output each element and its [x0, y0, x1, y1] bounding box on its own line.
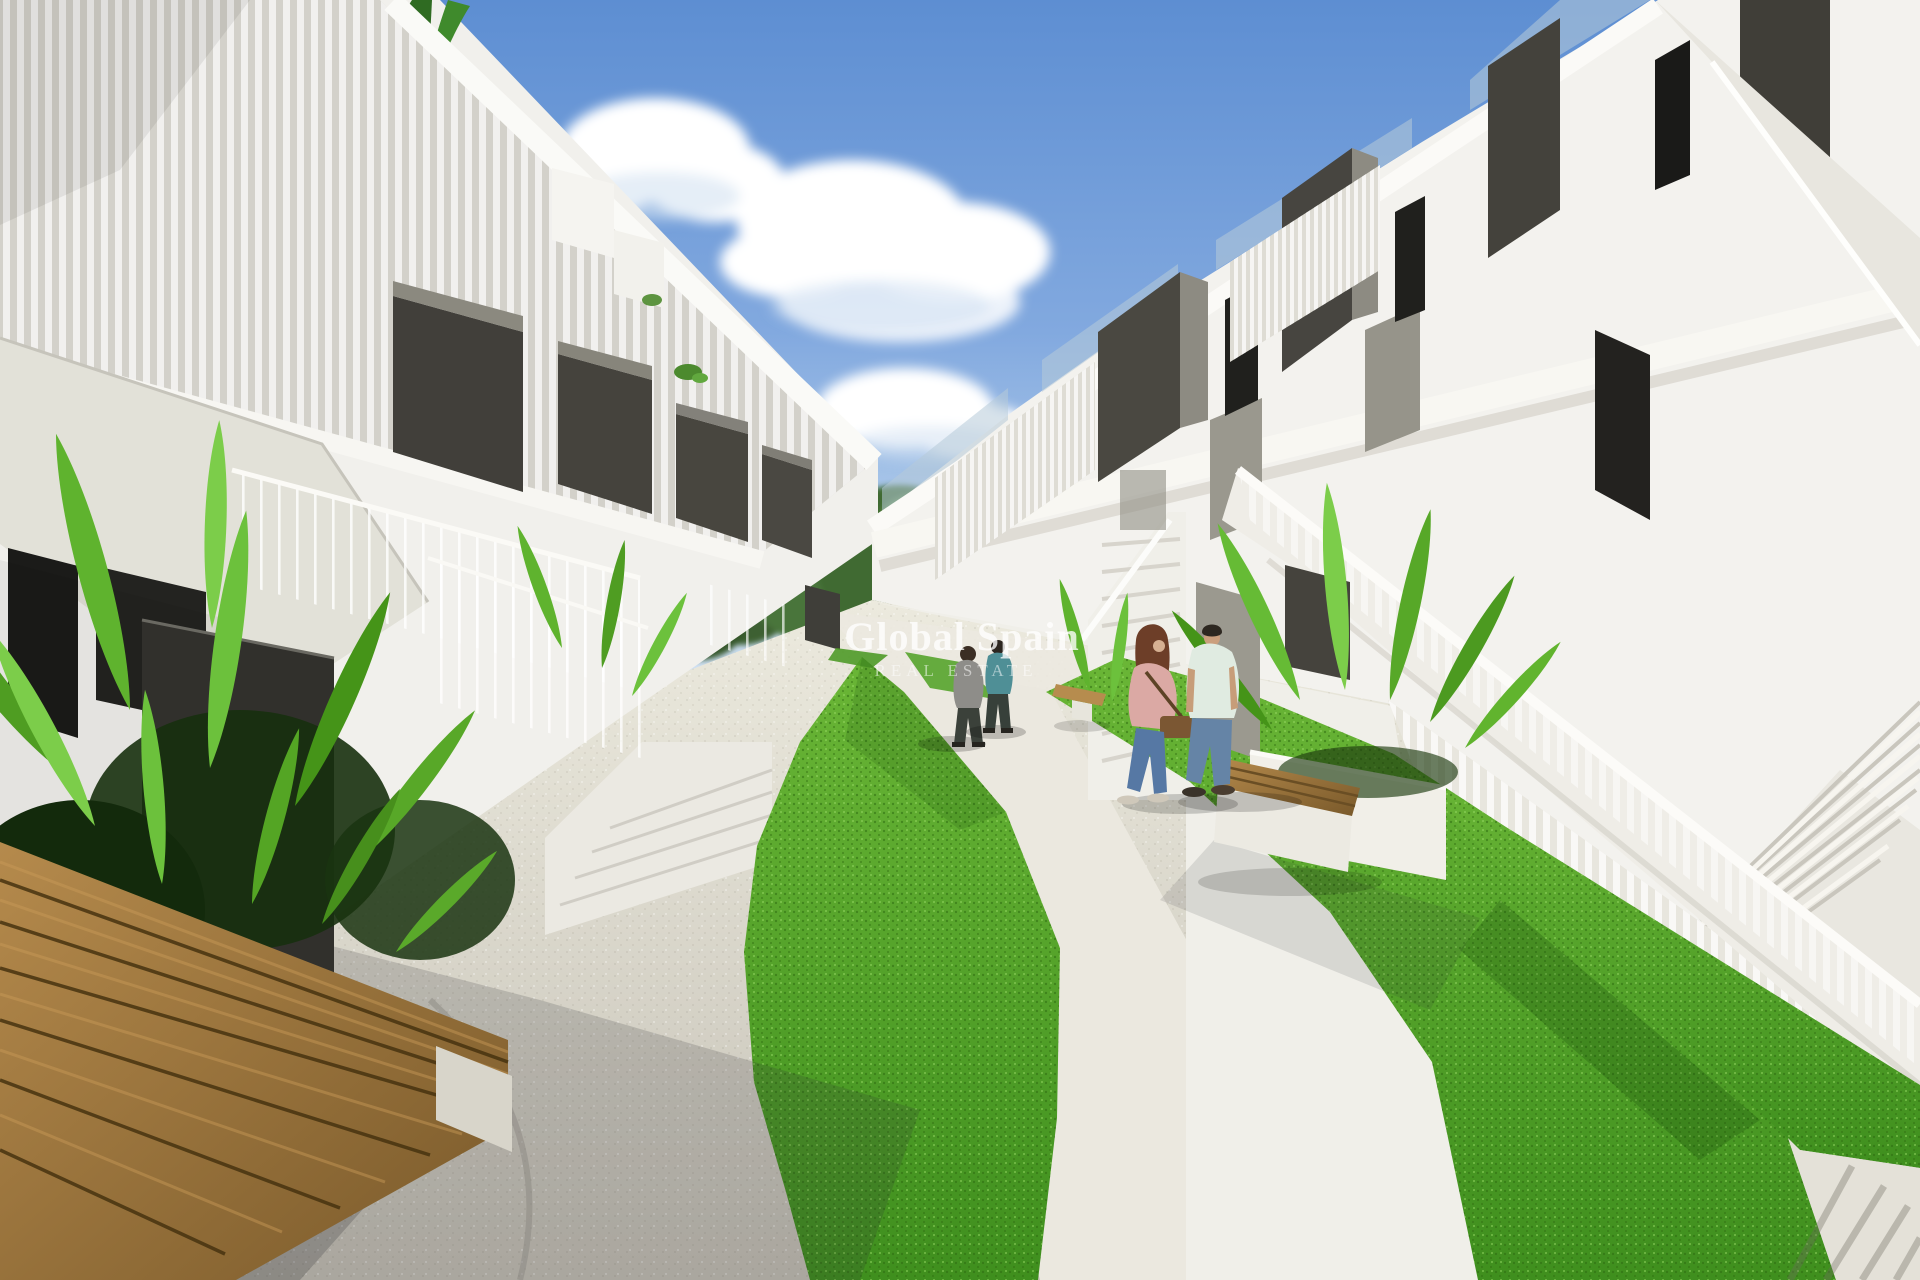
watermark-line2: REAL ESTATE — [874, 661, 1037, 680]
watermark-line1: Global Spain — [844, 614, 1079, 659]
render-image: Global Spain REAL ESTATE — [0, 0, 1920, 1280]
